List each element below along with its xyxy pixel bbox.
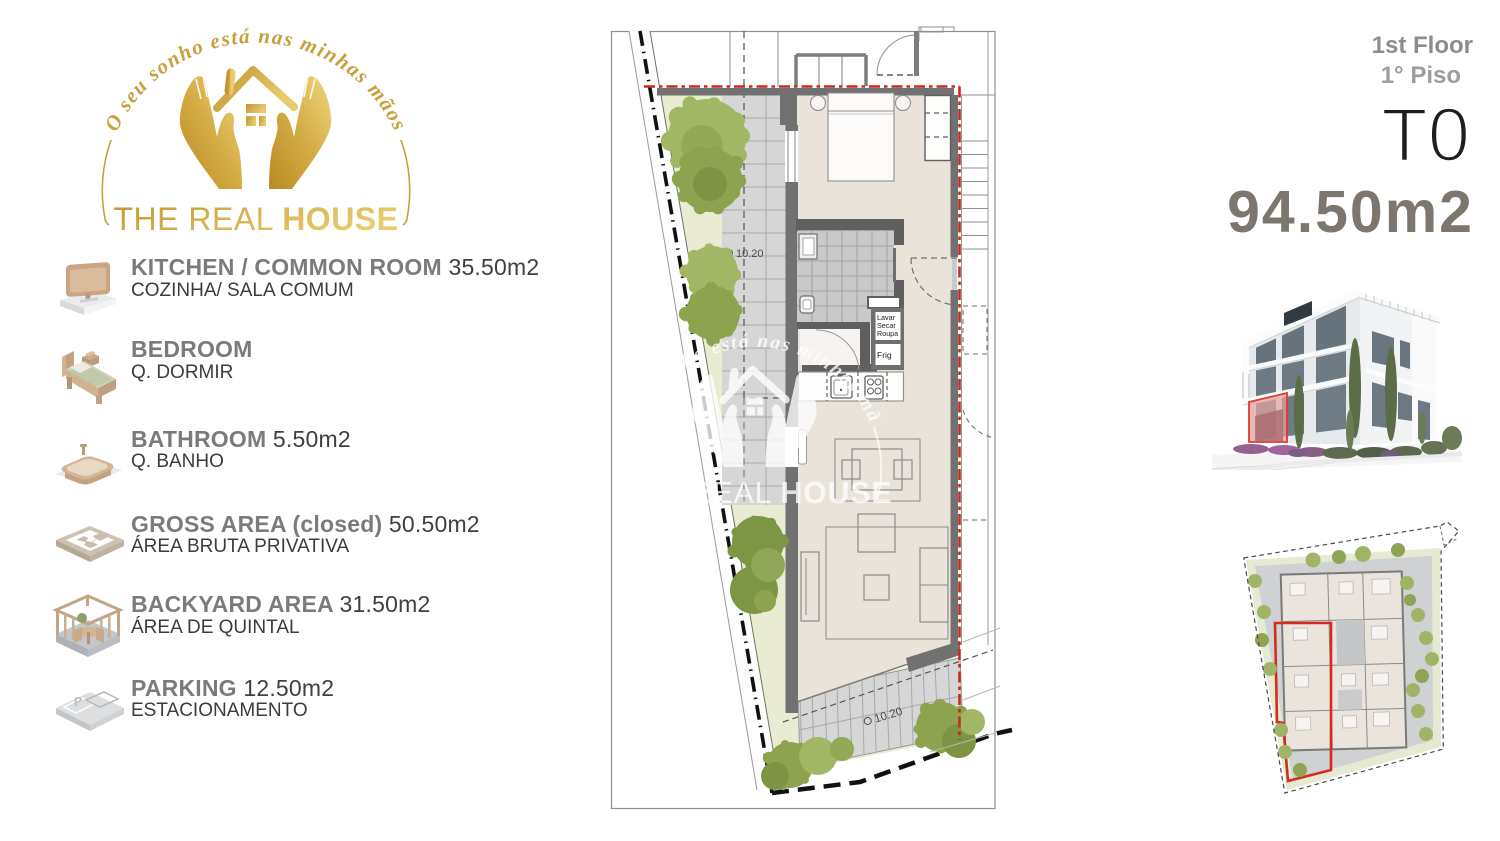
svg-text:P: P: [74, 694, 82, 709]
svg-text:Roupa: Roupa: [877, 329, 898, 338]
svg-text:10.20: 10.20: [736, 248, 764, 260]
svg-text:Frig: Frig: [877, 350, 892, 360]
svg-text:THE REAL HOUSE: THE REAL HOUSE: [617, 477, 892, 510]
